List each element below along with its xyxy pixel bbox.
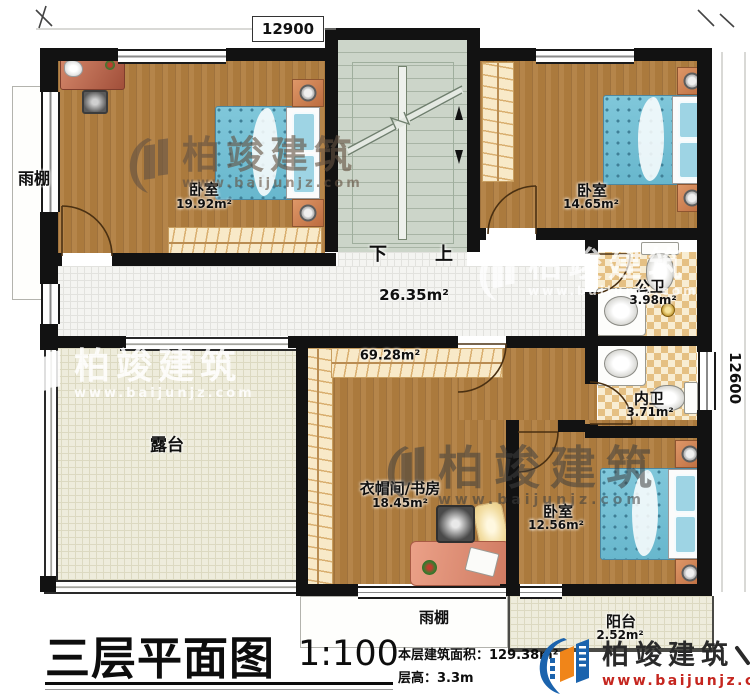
- nightstand-top-left-2: [292, 199, 324, 227]
- window-hallway-left: [41, 284, 60, 324]
- room-area-public-bath: 3.98m²: [629, 293, 676, 307]
- title-block: 三层平面图 1:100 本层建筑面积：129.38m² 层高：3.3m: [40, 622, 600, 697]
- wall-segment: [40, 253, 62, 266]
- wall-segment: [118, 336, 126, 348]
- plan-scale: 1:100: [298, 634, 399, 674]
- plan-title: 三层平面图: [45, 622, 275, 687]
- middle-zone-area: 69.28m²: [360, 349, 420, 364]
- wall-segment: [480, 228, 486, 240]
- corner-ticks: [36, 6, 734, 28]
- title-underline-2: [45, 689, 393, 690]
- room-area-bedroom-tl: 19.92m²: [176, 197, 232, 211]
- window-left-wall: [41, 92, 60, 212]
- terrace-bottom-parapet: [44, 580, 296, 594]
- wall-segment: [226, 48, 336, 61]
- desk-lamp: [64, 60, 83, 77]
- terrace-top-parapet: [120, 337, 296, 351]
- study-plant: [422, 560, 437, 575]
- brand-name: 柏竣建筑: [602, 641, 750, 671]
- brand-logo-icon: [536, 634, 596, 696]
- hallway-area: 26.35m²: [379, 286, 449, 304]
- floor-area-line: 本层建筑面积：129.38m²: [398, 644, 558, 663]
- bed-bottom-right-pillow-2: [674, 515, 697, 554]
- bed-top-left-pillow-1: [292, 112, 316, 152]
- room-area-private-bath: 3.71m²: [626, 405, 673, 419]
- wall-segment: [325, 28, 480, 40]
- wall-segment: [40, 336, 120, 348]
- wall-segment: [562, 584, 712, 596]
- stairs-down-label: 下: [369, 240, 387, 266]
- wall-segment: [296, 336, 308, 596]
- bed-top-left-pillow-2: [292, 154, 316, 194]
- wall-segment: [697, 438, 712, 596]
- brand-logo: 柏竣建筑 www.baijunjz.com: [536, 634, 750, 696]
- study-monitor: [436, 505, 475, 543]
- computer-top-left: [82, 90, 108, 114]
- terrace-left-parapet: [44, 350, 58, 580]
- dimension-right: 12600: [726, 352, 744, 404]
- closet-bedroom-top-right: [482, 62, 514, 182]
- brand-logo-text: 柏竣建筑 www.baijunjz.com: [602, 641, 750, 689]
- wall-segment: [585, 240, 598, 254]
- bed-bottom-right-pillow-1: [674, 474, 697, 513]
- wall-segment: [40, 576, 56, 592]
- wall-segment: [112, 253, 336, 266]
- nightstand-top-left-1: [292, 79, 324, 107]
- floor-plan: 卧室 19.92m² 卧室 14.65m² 公卫 3.98m² 内卫 3.71m…: [0, 0, 750, 699]
- floor-terrace: [54, 348, 296, 580]
- stair-center-rail: [398, 66, 407, 240]
- floor-height-line: 层高：3.3m: [398, 667, 474, 686]
- wall-segment: [40, 48, 58, 92]
- wall-segment: [585, 426, 712, 438]
- wall-segment: [296, 584, 358, 596]
- window-top-left-bedroom: [118, 49, 226, 64]
- wall-segment: [697, 48, 712, 240]
- wall-segment: [288, 336, 296, 348]
- floor-area-label: 本层建筑面积：: [398, 648, 489, 663]
- window-private-bath: [698, 352, 716, 410]
- private-bath-sink-basin: [604, 349, 638, 378]
- floor-hallway: [56, 266, 585, 336]
- wall-segment: [558, 420, 585, 432]
- wall-segment: [506, 336, 598, 348]
- wall-segment: [467, 28, 480, 252]
- wall-segment: [480, 48, 536, 61]
- window-bedroom-br-south: [520, 586, 562, 599]
- room-area-bedroom-br: 12.56m²: [528, 518, 584, 532]
- room-area-bedroom-tr: 14.65m²: [563, 197, 619, 211]
- window-top-right-bedroom: [536, 49, 634, 64]
- dimension-top: 12900: [252, 16, 324, 42]
- title-underline: [45, 682, 393, 685]
- private-bath-toilet-tank: [684, 382, 698, 414]
- wall-segment: [585, 336, 712, 346]
- room-area-study: 18.45m²: [372, 496, 428, 510]
- wall-segment: [585, 354, 598, 384]
- wall-segment: [506, 420, 519, 596]
- window-study-south: [358, 586, 506, 599]
- wall-segment: [296, 336, 458, 348]
- stairs-up-label: 上: [435, 240, 453, 266]
- room-label-canopy-left: 雨棚: [18, 165, 50, 189]
- floor-height-label: 层高：: [398, 671, 437, 686]
- room-label-terrace: 露台: [150, 431, 184, 456]
- wall-segment: [325, 28, 338, 252]
- floor-height-value: 3.3m: [437, 671, 474, 686]
- desk-plant: [105, 60, 115, 70]
- wall-segment: [536, 228, 712, 240]
- wall-segment: [40, 212, 58, 284]
- brand-url: www.baijunjz.com: [602, 673, 750, 689]
